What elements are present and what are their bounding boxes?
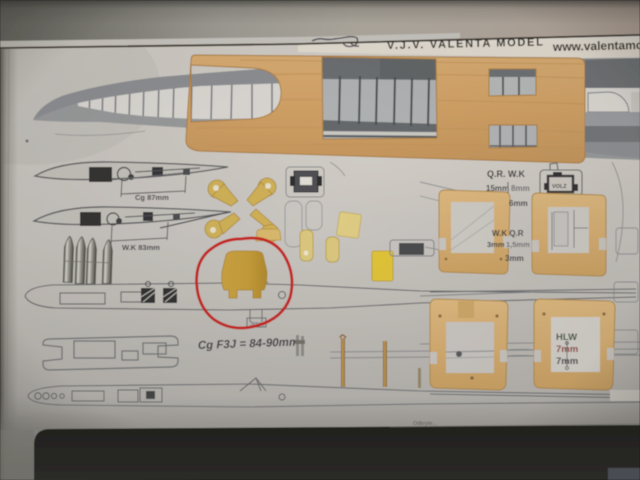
svg-text:Odkryte...: Odkryte... — [413, 421, 437, 427]
